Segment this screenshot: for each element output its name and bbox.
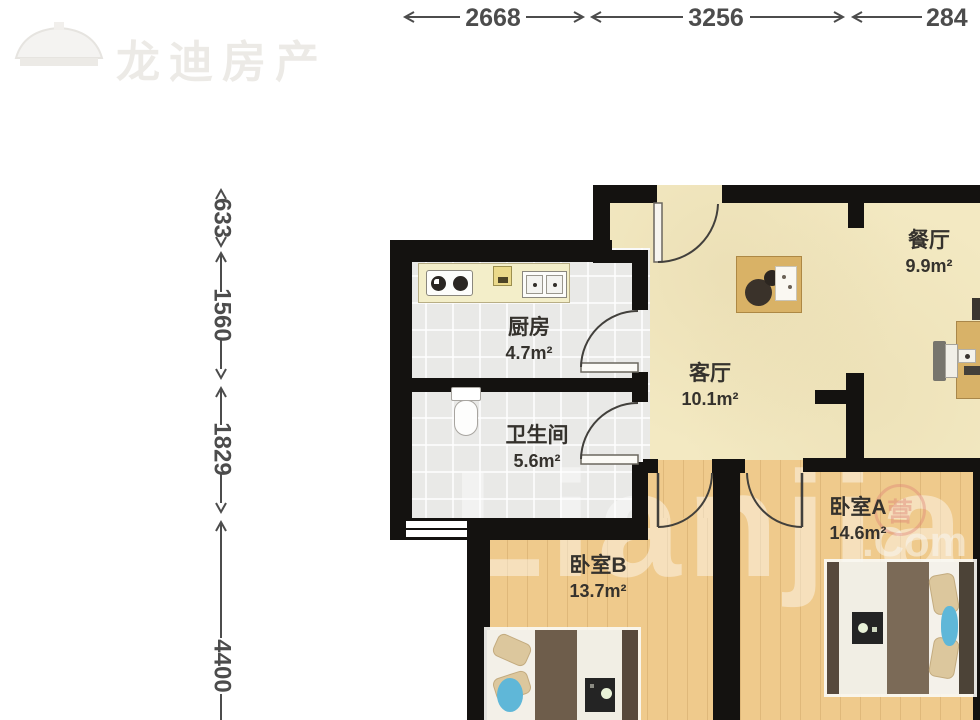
dim-left-2: 1560	[209, 288, 236, 341]
room-label-dining: 餐厅 9.9m²	[859, 229, 980, 277]
dim-top-1: 2668	[465, 4, 521, 32]
door-arc	[658, 204, 718, 262]
door-leaf	[581, 363, 638, 372]
room-label-bathroom: 卫生间 5.6m²	[467, 424, 607, 472]
room-label-living: 客厅 10.1m²	[640, 362, 780, 410]
dim-left-3: 1829	[209, 422, 236, 475]
room-name: 客厅	[640, 362, 780, 386]
dim-left-1: 633	[209, 198, 236, 238]
room-area: 4.7m²	[459, 343, 599, 364]
room-area: 14.6m²	[788, 523, 928, 544]
room-name: 卫生间	[467, 424, 607, 448]
room-label-bedroom-a: 卧室A 14.6m²	[788, 496, 928, 544]
room-name: 卧室B	[528, 554, 668, 578]
door-leaf	[654, 203, 662, 262]
floorplan-canvas: 龙迪房产 Lianjia .Com 营	[0, 0, 980, 720]
room-label-bedroom-b: 卧室B 13.7m²	[528, 554, 668, 602]
room-label-kitchen: 厨房 4.7m²	[459, 316, 599, 364]
dim-left-4: 4400	[209, 639, 236, 692]
door-arc	[658, 473, 712, 527]
room-name: 餐厅	[859, 229, 980, 253]
room-name: 卧室A	[788, 496, 928, 520]
room-area: 5.6m²	[467, 451, 607, 472]
room-area: 10.1m²	[640, 389, 780, 410]
dim-top-3: 284	[926, 4, 968, 32]
room-area: 13.7m²	[528, 581, 668, 602]
room-area: 9.9m²	[859, 256, 980, 277]
dim-top-2: 3256	[688, 4, 744, 32]
room-name: 厨房	[459, 316, 599, 340]
